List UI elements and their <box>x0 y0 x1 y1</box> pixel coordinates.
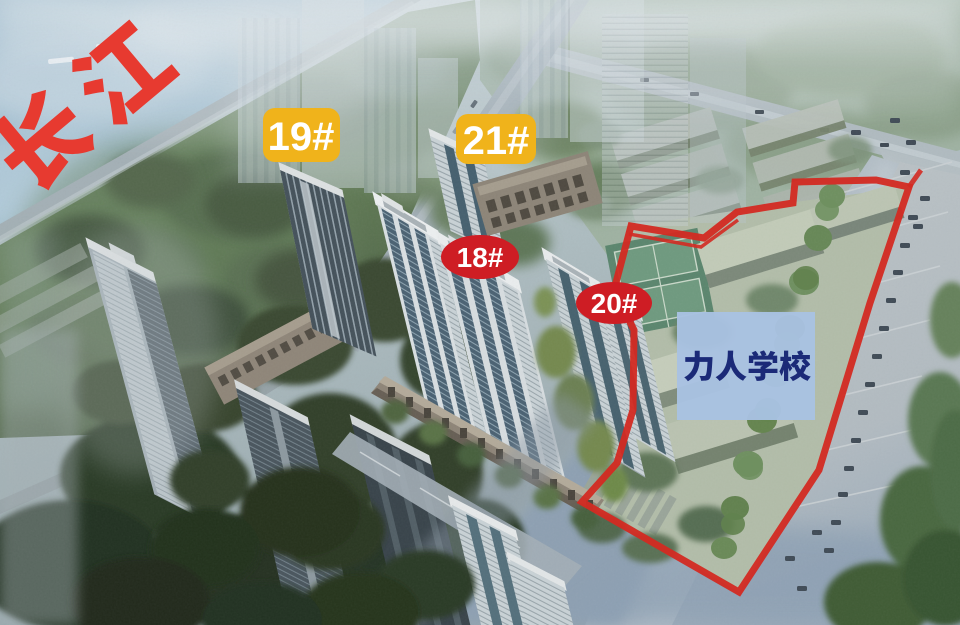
svg-text:21#: 21# <box>463 119 530 163</box>
svg-text:18#: 18# <box>457 242 504 273</box>
svg-text:20#: 20# <box>591 288 638 319</box>
svg-text:19#: 19# <box>268 115 335 159</box>
